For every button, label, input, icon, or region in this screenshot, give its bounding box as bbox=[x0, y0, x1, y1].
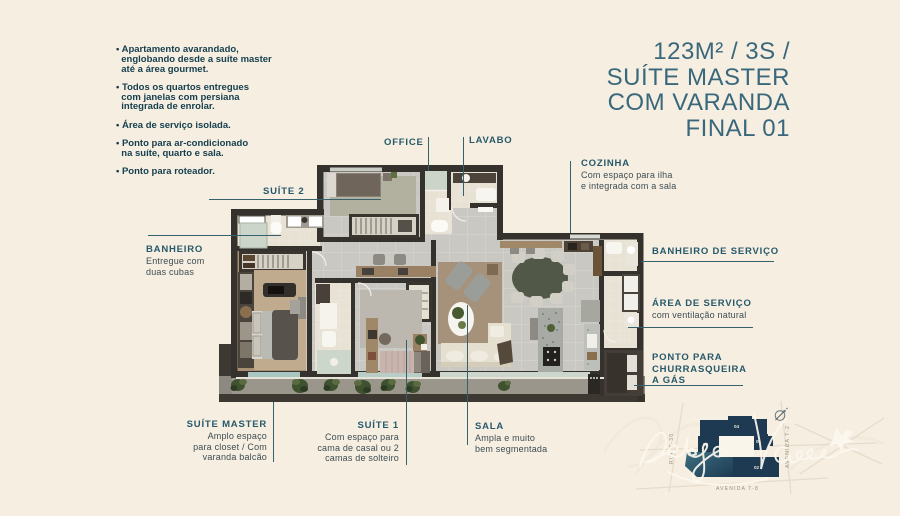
svg-text:02: 02 bbox=[754, 465, 760, 470]
svg-text:04: 04 bbox=[734, 424, 740, 429]
svg-text:AVENIDA T-8: AVENIDA T-8 bbox=[716, 486, 759, 492]
